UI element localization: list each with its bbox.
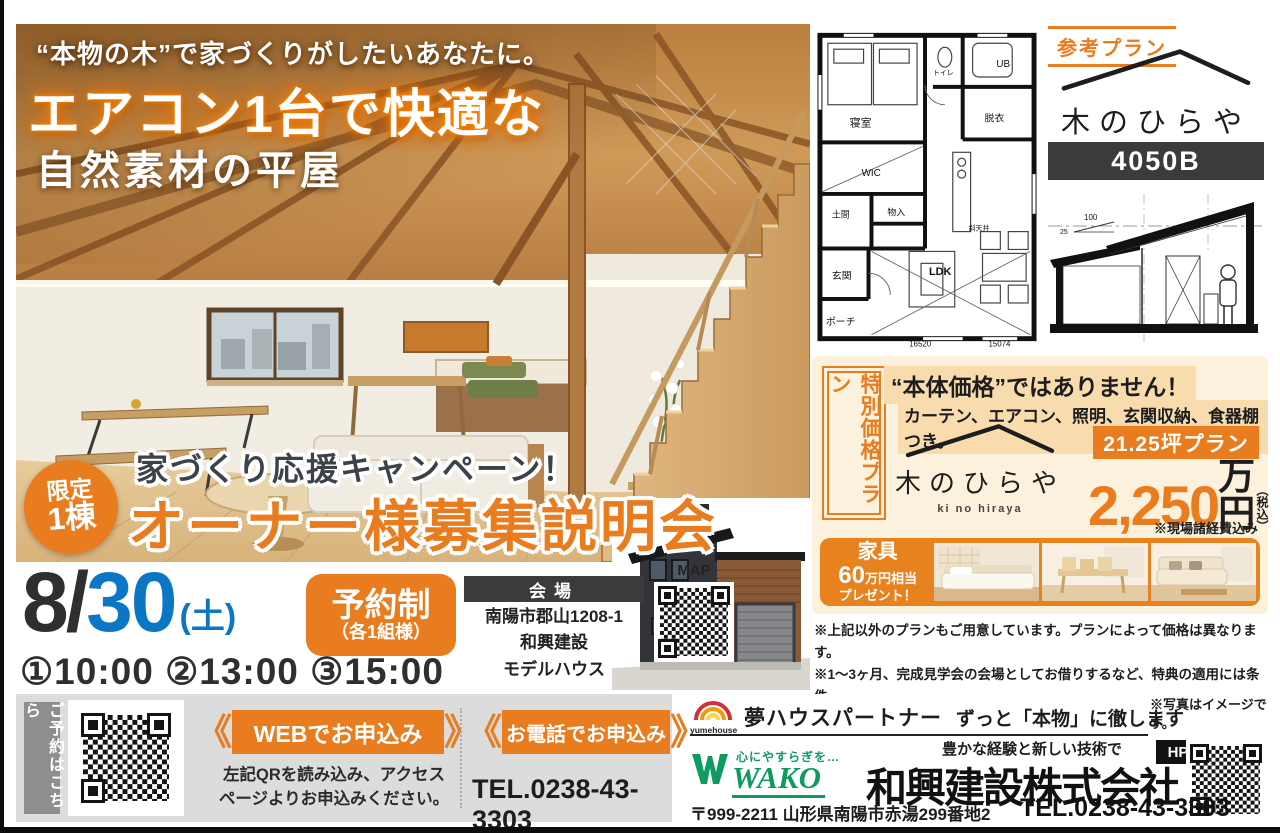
furniture-line2: 60万円相当: [824, 563, 931, 589]
reservation-label: 予約制: [332, 587, 431, 623]
hero-tagline: “本物の木”で家づくりがしたいあなたに。: [36, 34, 550, 71]
reservation-sublabel: （各1組様）: [331, 623, 431, 643]
qr-finder: [658, 586, 677, 605]
fp-label-porch: ポーチ: [826, 316, 856, 328]
booking-phone-number: TEL.0238-43-3303: [472, 774, 672, 833]
hero-title: エアコン1台で快適な: [28, 72, 545, 147]
venue-line1: 南陽市郡山1208-1: [464, 604, 644, 630]
furniture-photo-sofa: [1151, 543, 1256, 601]
plan-size-bar: 21.25坪プラン: [1093, 426, 1259, 459]
qr-finder: [81, 779, 105, 803]
furniture-gift-box: 家具 60万円相当 プレゼント！: [820, 538, 1260, 606]
furniture-gift-text: 家具 60万円相当 プレゼント！: [824, 541, 931, 604]
window: [207, 310, 343, 386]
section-drawing-art: 100 25: [1048, 190, 1264, 348]
roof-logo-icon: [895, 422, 1065, 458]
furniture-photo-bed: [934, 543, 1039, 601]
web-desc-line2: ページよりお申込みください。: [200, 788, 468, 812]
venue-line2: 和興建設: [464, 630, 644, 656]
hero-subtitle: 自然素材の平屋: [36, 138, 344, 196]
floor-plan-drawing: 寝室 トイレ UB 脱衣 WIC 土間 物入 玄関 ポーチ LDK 斜天井 16…: [814, 24, 1040, 350]
qr-finder: [1243, 744, 1262, 763]
floor-plan: 寝室 トイレ UB 脱衣 WIC 土間 物入 玄関 ポーチ LDK 斜天井 16…: [814, 24, 1040, 350]
web-apply-label: WEBでお申込み: [232, 710, 444, 754]
wako-logo-text: WAKO: [732, 762, 825, 798]
qr-finder: [711, 586, 730, 605]
booking-vertical-label: ご予約はこちら: [24, 702, 60, 814]
special-price-panel: 特別価格プラン “本体価格”ではありません！ カーテン、エアコン、照明、玄関収納…: [812, 356, 1268, 614]
tel-apply-label: お電話でお申込み: [502, 710, 670, 754]
fp-label-doma: 土間: [832, 209, 850, 220]
fp-label-ub: UB: [996, 59, 1010, 70]
section-dim-25: 25: [1060, 229, 1068, 236]
yumehouse-logo: yumehouse: [690, 696, 736, 735]
company-panel: yumehouse 夢ハウスパートナー ずっと「本物」に徹します ※写真はイメー…: [690, 694, 1268, 826]
flyer: “本物の木”で家づくりがしたいあなたに。 エアコン1台で快適な 自然素材の平屋 …: [0, 0, 1280, 833]
divider: [690, 734, 1148, 736]
company-phone: TEL.0238-43-3303: [1020, 794, 1230, 823]
qr-finder: [147, 713, 171, 737]
fp-label-toilet: トイレ: [933, 70, 954, 77]
page-edge-left: [0, 0, 4, 833]
fp-label-entrance: 玄関: [832, 269, 852, 282]
fp-label-dressing: 脱衣: [984, 112, 1004, 125]
section-drawing: 100 25: [1048, 190, 1264, 348]
date-month: 8/: [22, 560, 86, 644]
wako-w-icon: [690, 750, 730, 791]
date-day: 30: [86, 560, 175, 644]
qr-finder: [81, 713, 105, 737]
fp-label-ldk: LDK: [929, 266, 952, 278]
fp-label-closet: 物入: [887, 207, 905, 218]
fp-label-bedroom: 寝室: [850, 116, 872, 130]
plan-logo-name: 木のひらや: [1048, 99, 1264, 141]
tel-apply-ribbon: 《 お電話でお申込み 》: [466, 710, 706, 754]
web-desc-line1: 左記QRを読み込み、アクセス: [200, 764, 468, 788]
furniture-line1: 家具: [824, 541, 931, 563]
partner-name: 夢ハウスパートナー: [744, 702, 942, 732]
venue-address: 南陽市郡山1208-1 和興建設 モデルハウス: [464, 604, 644, 683]
company-address: 〒999-2211 山形県南陽市赤湯299番地2: [690, 800, 990, 825]
rainbow-arc-icon: [690, 696, 736, 722]
qr-finder: [658, 639, 677, 658]
venue-line3: モデルハウス: [464, 657, 644, 683]
roof-logo-icon: [1050, 46, 1262, 92]
plan-code: 4050B: [1048, 142, 1264, 180]
furniture-amount-suffix: 万円相当: [865, 571, 917, 586]
qr-finder: [1190, 744, 1209, 763]
campaign-title: オーナー様募集説明会: [128, 482, 718, 563]
note-line1: ※上記以外のプランもご用意しています。プランによって価格は異なります。: [814, 620, 1272, 664]
divider: [460, 708, 462, 808]
furniture-line3: プレゼント！: [824, 589, 931, 603]
section-dim-100: 100: [1084, 213, 1098, 222]
furniture-photo-dining: [1042, 543, 1147, 601]
chevron-left-icon: 《: [466, 714, 502, 750]
date-weekday: (土): [180, 600, 237, 634]
map-label: MAP: [652, 562, 736, 579]
badge-line2: 1棟: [47, 500, 98, 537]
page-edge-bottom: [0, 827, 1280, 833]
photo-disclaimer: ※写真はイメージです。: [1150, 694, 1268, 732]
price-headline: “本体価格”ではありません！: [884, 366, 1196, 404]
fp-label-slope: 斜天井: [969, 224, 990, 233]
chevron-left-icon: 《: [196, 714, 232, 750]
web-apply-description: 左記QRを読み込み、アクセス ページよりお申込みください。: [200, 764, 468, 812]
event-times: ①10:00 ②13:00 ③15:00: [20, 650, 444, 693]
price-logo: 木のひらや ki no hiraya: [872, 422, 1088, 515]
price-logo-roman: ki no hiraya: [872, 503, 1088, 515]
reservation-badge: 予約制 （各1組様）: [306, 574, 456, 656]
price-logo-name: 木のひらや: [872, 463, 1088, 500]
web-qr-card: [68, 700, 184, 816]
price-note: ※現場諸経費込み: [1052, 518, 1258, 537]
fp-dim1: 16520: [909, 340, 932, 349]
furniture-amount: 60: [838, 562, 865, 589]
map-qr-code: [654, 582, 734, 662]
fp-label-wic: WIC: [862, 168, 881, 179]
web-apply-ribbon: 《 WEBでお申込み 》: [196, 710, 480, 754]
event-date: 8/ 30 (土): [22, 560, 236, 644]
web-qr-code: [76, 708, 176, 808]
booking-panel: ご予約はこちら 《 WEBでお申込み 》 左記QRを読み込み、アクセス ページよ…: [16, 694, 672, 822]
fp-dim2: 15074: [988, 340, 1011, 349]
venue-label: 会場: [464, 576, 644, 602]
